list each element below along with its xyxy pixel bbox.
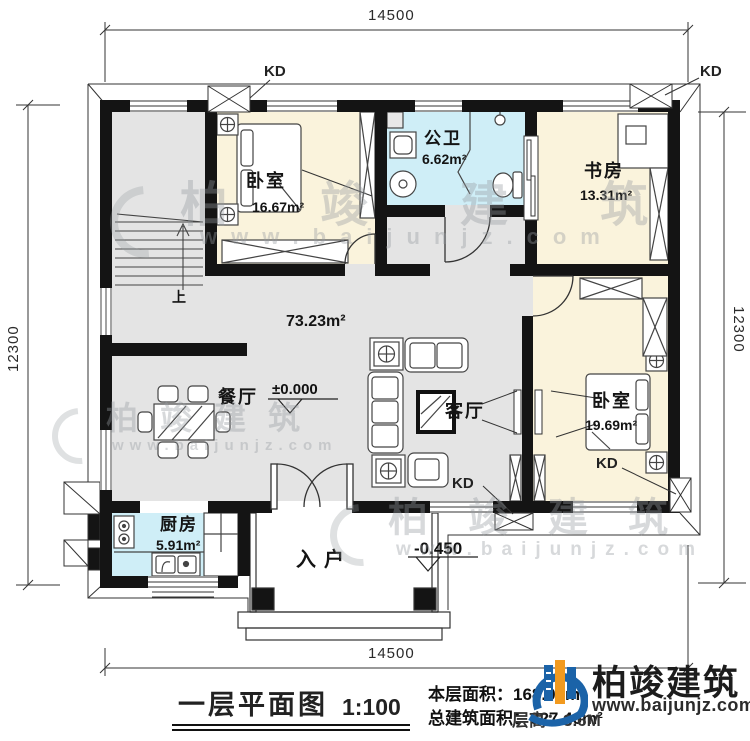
title-underline xyxy=(172,729,410,731)
bedroom1-area: 16.67m² xyxy=(252,200,304,214)
floor-area-label: 本层面积： xyxy=(428,685,513,704)
living-label: 客厅 xyxy=(445,402,485,420)
hall-area: 73.23m² xyxy=(286,314,346,330)
level-main: ±0.000 xyxy=(272,382,318,397)
stairs-up-label: 上 xyxy=(172,290,186,304)
kd-label-2: KD xyxy=(700,64,722,79)
study-label: 书房 xyxy=(584,162,624,180)
bedroom2-area: 19.69m² xyxy=(585,418,637,432)
plan-scale: 1:100 xyxy=(342,696,401,719)
kd-label-4: KD xyxy=(596,456,618,471)
brand-block: 柏竣建筑 www.baijunjz.com xyxy=(524,655,746,733)
level-porch: -0.450 xyxy=(414,540,462,557)
floorplan-drawing xyxy=(0,0,750,741)
floorplan-page: 14500 14500 12300 12300 卧室 16.67m² 公卫 6.… xyxy=(0,0,750,741)
bathroom-area: 6.62m² xyxy=(422,152,466,166)
kd-label-1: KD xyxy=(264,64,286,79)
kd-label-3: KD xyxy=(452,476,474,491)
dimension-top: 14500 xyxy=(368,8,415,23)
kitchen-label: 厨房 xyxy=(160,516,198,533)
bathroom-label: 公卫 xyxy=(424,130,462,147)
dimension-left: 12300 xyxy=(6,325,21,372)
left-flue xyxy=(64,482,100,570)
title-underline xyxy=(172,724,410,726)
entry-label: 入户 xyxy=(296,550,352,570)
dimension-bottom: 14500 xyxy=(368,646,415,661)
kitchen-area: 5.91m² xyxy=(156,538,200,552)
study-area: 13.31m² xyxy=(580,188,632,202)
bedroom1-label: 卧室 xyxy=(246,172,286,190)
plan-title: 一层平面图 xyxy=(178,692,328,719)
brand-url: www.baijunjz.com xyxy=(592,695,750,716)
brand-logo-icon xyxy=(524,655,588,729)
dimension-right: 12300 xyxy=(731,306,746,353)
bedroom2-label: 卧室 xyxy=(592,392,632,410)
dining-label: 餐厅 xyxy=(218,388,258,406)
